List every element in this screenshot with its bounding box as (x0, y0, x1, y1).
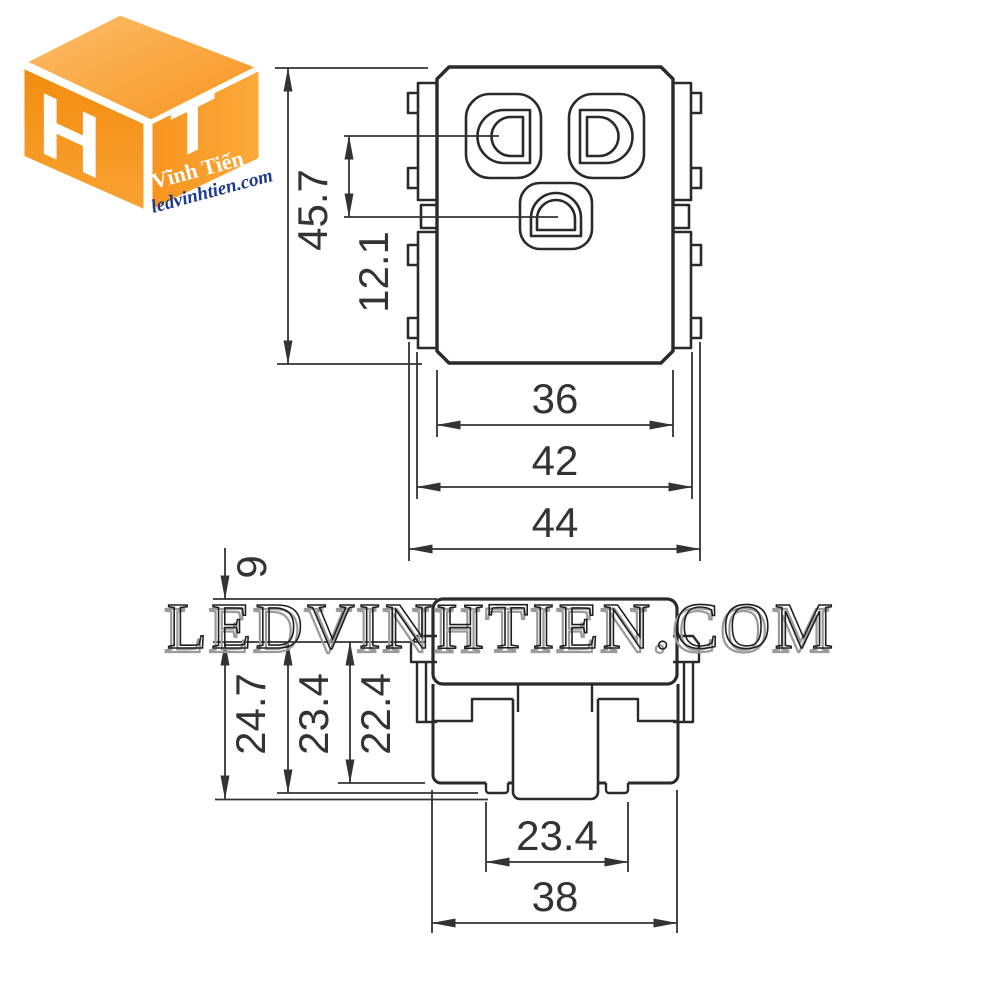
top-view-body (437, 67, 673, 363)
watermark-text: LEDVINHTIEN.COM (167, 590, 837, 663)
right-pin-hole (569, 94, 644, 178)
dim-width-outer-label: 44 (532, 499, 579, 546)
technical-drawing-page: 45.7 12.1 36 42 44 (0, 0, 1000, 1000)
side-view-center-block (513, 699, 598, 799)
dim-width-mid-label: 42 (532, 437, 579, 484)
dim-face-height-label: 9 (228, 555, 275, 578)
top-view-left-wings (408, 83, 437, 348)
top-view-right-wings (673, 83, 701, 348)
dim-depth-body-label: 22.4 (352, 673, 399, 755)
dim-top-height-label: 45.7 (289, 169, 336, 251)
top-view-dimensions (275, 68, 700, 561)
dim-claw-span-label: 23.4 (516, 812, 598, 859)
ground-pin-hole (520, 183, 592, 249)
dim-depth-mid-label: 23.4 (290, 673, 337, 755)
dim-width-inner-label: 36 (532, 375, 579, 422)
side-view-inner-contour (433, 684, 678, 721)
dim-hole-offset-label: 12.1 (350, 231, 397, 313)
dim-depth-max-label: 24.7 (227, 673, 274, 755)
dim-body-width-label: 38 (532, 873, 579, 920)
watermark: LEDVINHTIEN.COM LEDVINHTIEN.COM (164, 590, 837, 667)
brand-logo: H T Vĩnh Tiến ledvinhtien.com (23, 14, 275, 218)
socket-dimension-drawing: 45.7 12.1 36 42 44 (0, 0, 1000, 1000)
top-view-outline (408, 67, 701, 363)
side-view-feet (486, 783, 628, 793)
side-view-body (433, 684, 678, 783)
top-view-dimension-labels: 45.7 12.1 36 42 44 (289, 169, 578, 546)
